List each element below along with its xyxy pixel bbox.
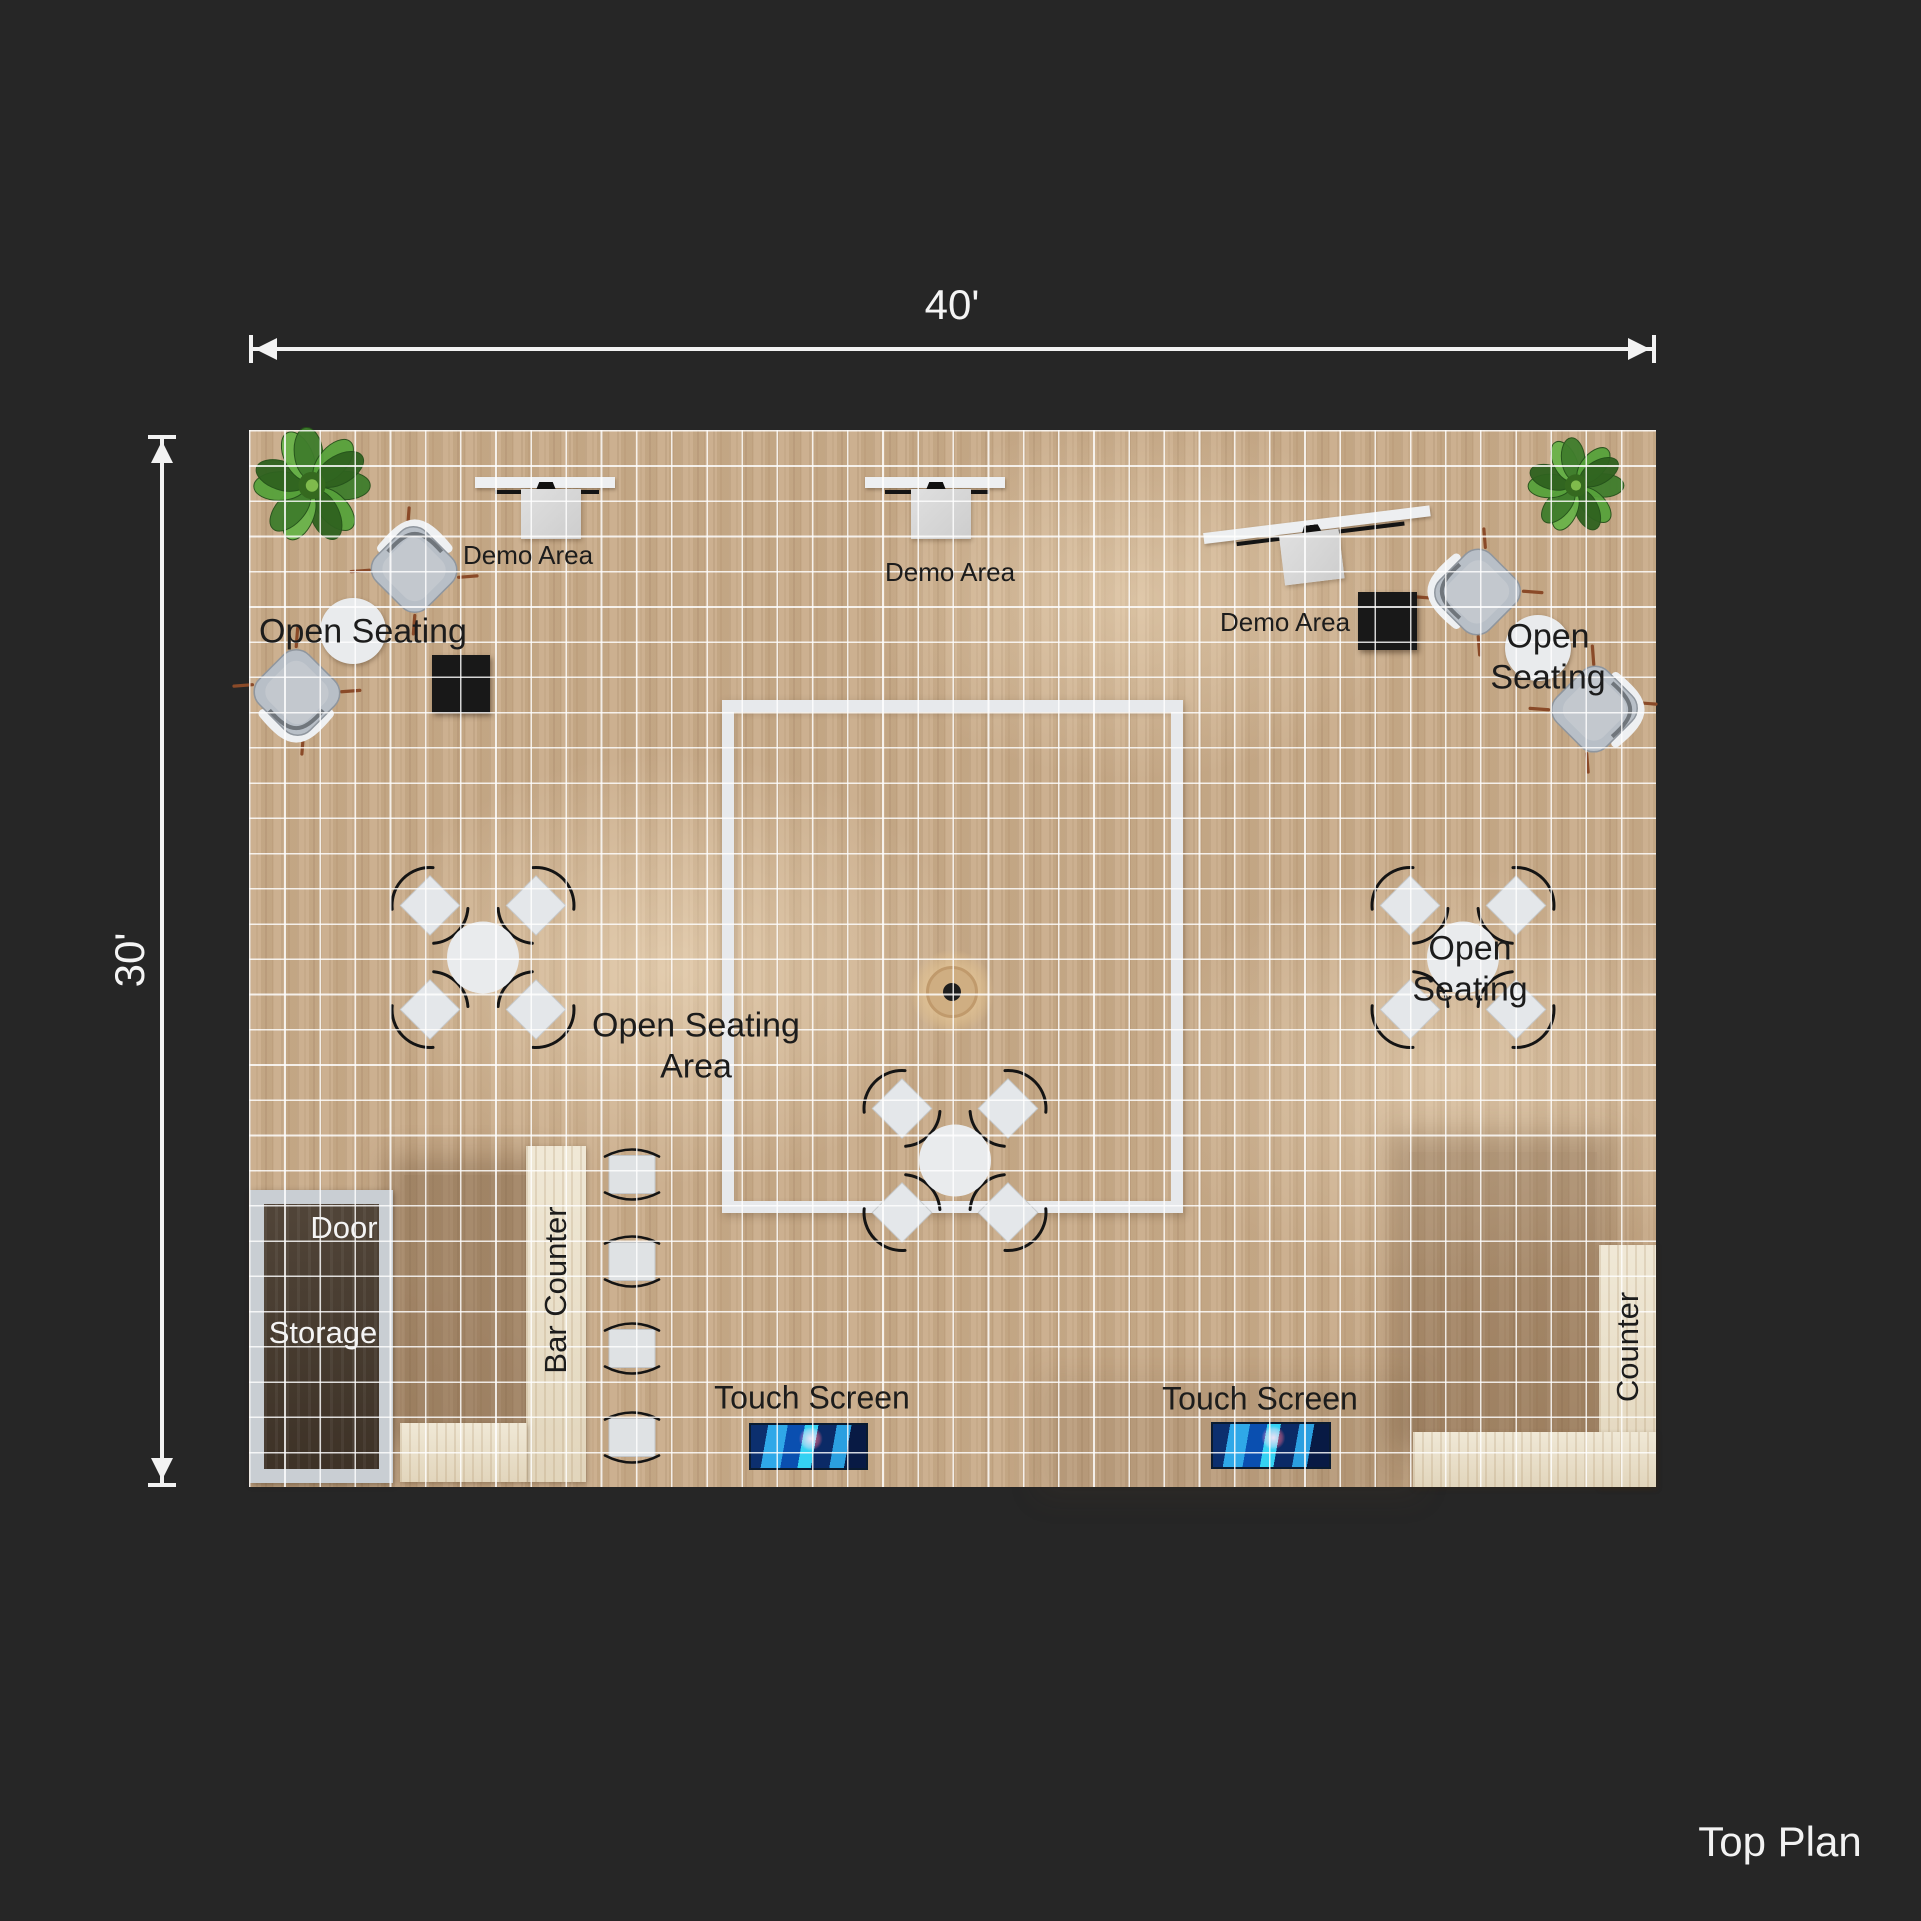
label-layer: Demo AreaDemo AreaDemo AreaOpen SeatingO…	[249, 430, 1656, 1487]
label-open-seating-3: Open Seating	[1377, 929, 1563, 1012]
height-dimension-cap-top	[148, 435, 176, 439]
label-demo-area-3: Demo Area	[1220, 607, 1350, 639]
width-dimension-line	[249, 347, 1656, 351]
label-door: Door	[310, 1209, 377, 1247]
label-counter: Counter	[1609, 1292, 1647, 1402]
arrow-up-icon	[151, 441, 173, 463]
width-dimension-label: 40'	[925, 281, 980, 329]
label-touch-screen-2: Touch Screen	[1162, 1379, 1358, 1418]
label-touch-screen-1: Touch Screen	[714, 1378, 910, 1417]
booth-floor: Demo AreaDemo AreaDemo AreaOpen SeatingO…	[249, 430, 1656, 1487]
label-demo-area-1: Demo Area	[463, 540, 593, 572]
label-storage: Storage	[269, 1314, 378, 1352]
label-open-seating-1: Open Seating	[259, 611, 467, 652]
height-dimension-label: 30'	[106, 933, 154, 988]
height-dimension-cap-bottom	[148, 1483, 176, 1487]
label-open-seating-2: Open Seating	[1490, 617, 1605, 700]
label-open-seating-area: Open Seating Area	[592, 1006, 800, 1089]
arrow-right-icon	[1628, 338, 1650, 360]
height-dimension-line	[160, 435, 164, 1487]
width-dimension-cap-left	[249, 335, 253, 363]
label-demo-area-2: Demo Area	[885, 557, 1015, 589]
arrow-left-icon	[255, 338, 277, 360]
top-plan-canvas: 40' 30'	[0, 0, 1921, 1921]
label-bar-counter: Bar Counter	[537, 1206, 575, 1373]
arrow-down-icon	[151, 1458, 173, 1480]
width-dimension-cap-right	[1652, 335, 1656, 363]
page-title: Top Plan	[1698, 1818, 1861, 1866]
